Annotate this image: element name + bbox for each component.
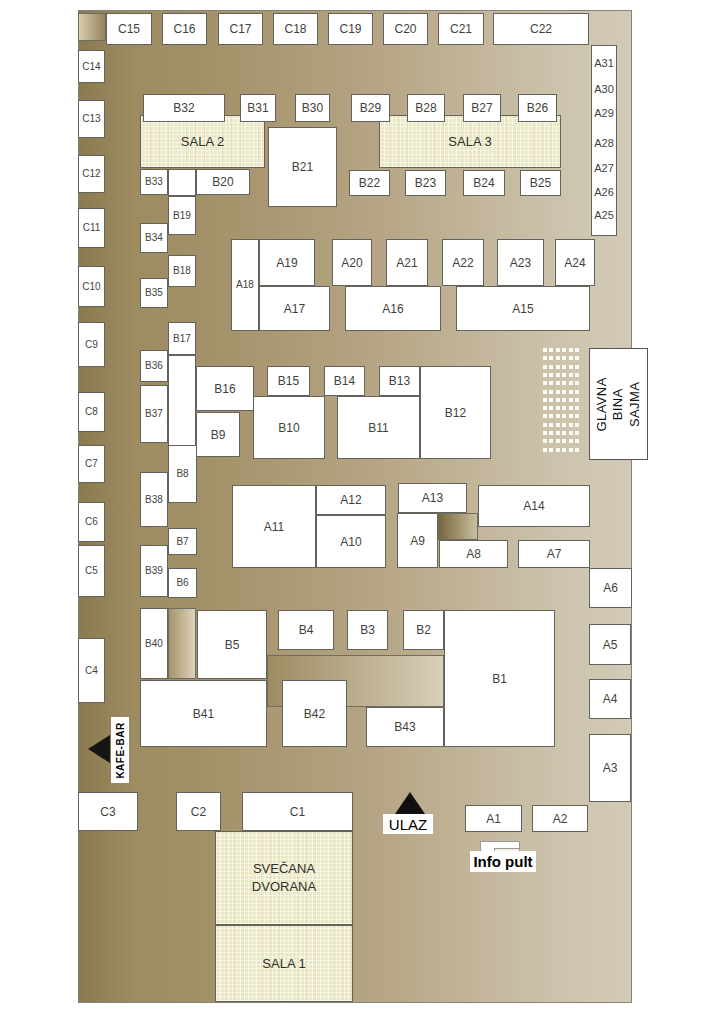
- booth-column-a25-a31: A31A30A29A28A27A26A25: [591, 45, 617, 236]
- booth-b6: B6: [168, 568, 197, 598]
- booth-a29: A29: [592, 107, 616, 119]
- booth-a1: A1: [465, 805, 522, 832]
- booth-a5: A5: [589, 624, 631, 665]
- seat-dot: [569, 406, 573, 410]
- booth-c15: C15: [106, 13, 152, 45]
- seat-dot: [569, 423, 573, 427]
- booth-b17: B17: [168, 322, 196, 355]
- seat-dot: [543, 439, 547, 443]
- seat-dot: [549, 431, 553, 435]
- hall-sala-3: SALA 3: [379, 115, 561, 168]
- seat-dot: [562, 381, 566, 385]
- booth-b10: B10: [253, 396, 325, 459]
- booth-a11: A11: [232, 485, 316, 568]
- decor-a14-side-cell: [438, 513, 478, 540]
- seat-dot: [575, 348, 579, 352]
- hall-sala-1: SALA 1: [215, 925, 353, 1002]
- booth-a22: A22: [442, 239, 484, 286]
- seat-dot: [549, 448, 553, 452]
- cafe-bar-arrow-icon: [88, 735, 110, 763]
- booth-a9: A9: [397, 513, 438, 568]
- booth-c11: C11: [78, 208, 105, 248]
- booth-c12: C12: [78, 155, 105, 193]
- seat-dot: [549, 398, 553, 402]
- seat-dot: [556, 390, 560, 394]
- booth-b33: B33: [140, 169, 168, 195]
- seat-dot: [543, 381, 547, 385]
- booth-a26: A26: [592, 186, 616, 198]
- seat-dot: [543, 431, 547, 435]
- booth-c3: C3: [78, 792, 138, 831]
- seat-dot: [569, 448, 573, 452]
- booth-b2: B2: [403, 610, 444, 650]
- booth-c19: C19: [328, 13, 373, 45]
- seat-dot: [575, 414, 579, 418]
- seat-dot: [543, 406, 547, 410]
- seat-dot: [575, 398, 579, 402]
- seat-dot: [569, 439, 573, 443]
- booth-b18: B18: [168, 255, 196, 287]
- seat-dot: [549, 423, 553, 427]
- booth-b22: B22: [349, 170, 390, 196]
- seat-dot: [549, 373, 553, 377]
- booth-c20: C20: [383, 13, 428, 45]
- booth-b24: B24: [463, 170, 505, 196]
- booth-c7: C7: [78, 445, 105, 483]
- booth-a13: A13: [398, 483, 467, 513]
- seat-dot: [562, 398, 566, 402]
- booth-c17: C17: [218, 13, 263, 45]
- booth-a15: A15: [456, 286, 590, 331]
- entrance-arrow-icon: [395, 792, 425, 814]
- decor-b40-side-cell: [168, 608, 196, 679]
- seat-dot: [543, 348, 547, 352]
- hall-sala-2: SALA 2: [140, 115, 265, 168]
- booth-blank: [168, 169, 196, 196]
- cafe-bar-label: KAFE-BAR: [115, 722, 126, 778]
- info-desk-label: Info pult: [470, 851, 536, 872]
- booth-a20: A20: [332, 239, 372, 286]
- booth-a8: A8: [439, 540, 508, 568]
- booth-a23: A23: [497, 239, 544, 286]
- booth-b9: B9: [196, 412, 240, 457]
- seat-dot: [549, 348, 553, 352]
- booth-b4: B4: [278, 610, 334, 650]
- seat-dot: [556, 398, 560, 402]
- seat-dot: [569, 348, 573, 352]
- booth-b8: B8: [168, 445, 197, 503]
- booth-b21: B21: [268, 127, 337, 207]
- seat-dot: [556, 406, 560, 410]
- seat-dot: [556, 356, 560, 360]
- booth-a27: A27: [592, 162, 616, 174]
- booth-b23: B23: [405, 170, 446, 196]
- seat-dot: [543, 448, 547, 452]
- seat-dot: [569, 390, 573, 394]
- booth-b14: B14: [324, 366, 365, 396]
- booth-b31: B31: [240, 94, 276, 122]
- booth-c21: C21: [438, 13, 484, 45]
- booth-c18: C18: [273, 13, 318, 45]
- seat-dot: [575, 381, 579, 385]
- seat-dot: [562, 365, 566, 369]
- stage-seating-dots: [543, 348, 583, 456]
- seat-dot: [575, 431, 579, 435]
- fair-floor-plan: SALA 2SALA 3SVEČANA DVORANASALA 1C15C16C…: [0, 0, 723, 1024]
- seat-dot: [569, 414, 573, 418]
- seat-dot: [549, 381, 553, 385]
- booth-b27: B27: [463, 94, 501, 122]
- booth-a24: A24: [555, 239, 595, 286]
- seat-dot: [562, 373, 566, 377]
- seat-dot: [556, 431, 560, 435]
- seat-dot: [562, 431, 566, 435]
- seat-dot: [569, 365, 573, 369]
- seat-dot: [543, 398, 547, 402]
- seat-dot: [575, 406, 579, 410]
- booth-c13: C13: [78, 100, 105, 138]
- cafe-bar-label-box: KAFE-BAR: [111, 717, 129, 783]
- seat-dot: [562, 348, 566, 352]
- seat-dot: [575, 439, 579, 443]
- seat-dot: [569, 373, 573, 377]
- booth-b29: B29: [351, 94, 390, 122]
- booth-c2: C2: [176, 792, 221, 831]
- booth-c8: C8: [78, 392, 105, 432]
- entrance-label: ULAZ: [383, 814, 433, 834]
- seat-dot: [549, 406, 553, 410]
- booth-c5: C5: [78, 545, 105, 597]
- decor-corner-cell: [78, 13, 106, 41]
- seat-dot: [562, 423, 566, 427]
- seat-dot: [562, 448, 566, 452]
- booth-blank: [168, 355, 196, 457]
- seat-dot: [556, 348, 560, 352]
- booth-a25: A25: [592, 209, 616, 221]
- booth-a10: A10: [316, 515, 386, 568]
- seat-dot: [569, 381, 573, 385]
- seat-dot: [575, 356, 579, 360]
- booth-b3: B3: [347, 610, 388, 650]
- booth-a30: A30: [592, 83, 616, 95]
- main-stage-label: GLAVNA BINA SAJMA: [594, 376, 643, 433]
- booth-a7: A7: [518, 540, 590, 568]
- seat-dot: [575, 448, 579, 452]
- booth-a17: A17: [259, 286, 330, 331]
- booth-a21: A21: [386, 239, 428, 286]
- booth-a4: A4: [589, 679, 631, 719]
- seat-dot: [562, 390, 566, 394]
- seat-dot: [543, 373, 547, 377]
- booth-c6: C6: [78, 502, 105, 542]
- seat-dot: [556, 423, 560, 427]
- seat-dot: [543, 390, 547, 394]
- seat-dot: [575, 423, 579, 427]
- booth-b15: B15: [267, 366, 310, 396]
- booth-a6: A6: [589, 568, 632, 608]
- booth-c1: C1: [242, 792, 353, 831]
- booth-a12: A12: [316, 485, 386, 515]
- booth-c16: C16: [162, 13, 207, 45]
- seat-dot: [569, 431, 573, 435]
- seat-dot: [549, 414, 553, 418]
- seat-dot: [556, 448, 560, 452]
- seat-dot: [543, 423, 547, 427]
- booth-b16: B16: [196, 366, 254, 411]
- seat-dot: [575, 390, 579, 394]
- booth-b7: B7: [168, 528, 197, 555]
- booth-b11: B11: [337, 396, 420, 459]
- booth-b38: B38: [140, 472, 168, 527]
- booth-b26: B26: [518, 94, 557, 122]
- booth-c10: C10: [78, 266, 105, 307]
- booth-c9: C9: [78, 322, 105, 367]
- booth-a31: A31: [592, 57, 616, 69]
- booth-b19: B19: [168, 196, 196, 235]
- booth-a28: A28: [592, 137, 616, 149]
- seat-dot: [556, 381, 560, 385]
- seat-dot: [562, 414, 566, 418]
- seat-dot: [543, 365, 547, 369]
- main-stage: GLAVNA BINA SAJMA: [589, 348, 648, 460]
- seat-dot: [562, 439, 566, 443]
- seat-dot: [569, 398, 573, 402]
- booth-a3: A3: [589, 734, 631, 802]
- seat-dot: [569, 356, 573, 360]
- seat-dot: [556, 373, 560, 377]
- seat-dot: [543, 356, 547, 360]
- booth-b32: B32: [143, 94, 225, 122]
- booth-b34: B34: [140, 223, 168, 253]
- seat-dot: [562, 356, 566, 360]
- booth-b25: B25: [520, 170, 561, 196]
- booth-b37: B37: [140, 385, 168, 443]
- booth-c22: C22: [493, 13, 589, 45]
- seat-dot: [549, 356, 553, 360]
- booth-a18: A18: [231, 239, 259, 331]
- booth-b12: B12: [420, 366, 491, 459]
- booth-c4: C4: [78, 638, 105, 703]
- booth-a19: A19: [259, 239, 315, 286]
- seat-dot: [543, 414, 547, 418]
- booth-b40: B40: [140, 608, 168, 679]
- booth-b20: B20: [196, 169, 250, 195]
- booth-b1: B1: [444, 610, 555, 747]
- booth-b5: B5: [197, 610, 267, 679]
- booth-c14: C14: [78, 50, 105, 83]
- booth-b41: B41: [140, 680, 267, 747]
- booth-a16: A16: [345, 286, 441, 331]
- seat-dot: [556, 439, 560, 443]
- hall-svecana-dvorana: SVEČANA DVORANA: [215, 831, 353, 925]
- seat-dot: [556, 365, 560, 369]
- booth-b42: B42: [282, 680, 347, 747]
- seat-dot: [575, 365, 579, 369]
- booth-b35: B35: [140, 278, 168, 308]
- seat-dot: [575, 373, 579, 377]
- booth-b36: B36: [140, 350, 168, 382]
- seat-dot: [549, 365, 553, 369]
- booth-b13: B13: [379, 366, 420, 396]
- booth-b43: B43: [366, 707, 444, 747]
- booth-a14: A14: [478, 485, 590, 527]
- booth-b28: B28: [407, 94, 445, 122]
- seat-dot: [562, 406, 566, 410]
- booth-a2: A2: [532, 805, 588, 832]
- booth-b30: B30: [295, 94, 330, 122]
- seat-dot: [549, 439, 553, 443]
- seat-dot: [556, 414, 560, 418]
- booth-b39: B39: [140, 545, 168, 597]
- seat-dot: [549, 390, 553, 394]
